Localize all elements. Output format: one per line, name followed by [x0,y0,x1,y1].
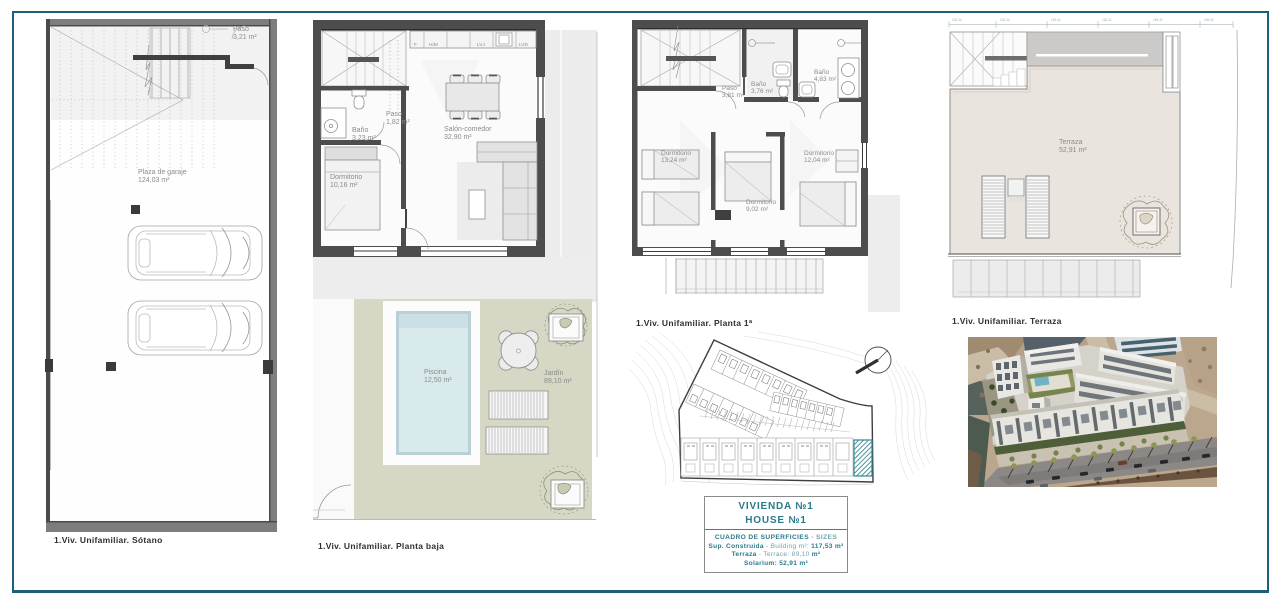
svg-text:Salón-comedor: Salón-comedor [444,126,492,133]
svg-text:162,41: 162,41 [1153,18,1163,22]
svg-text:Terraza: Terraza [1059,139,1082,146]
svg-text:H/M: H/M [429,42,438,48]
svg-text:1.Viv. Unifamiliar. Planta 1ª: 1.Viv. Unifamiliar. Planta 1ª [636,318,753,328]
svg-text:Baño: Baño [814,69,830,76]
svg-text:3,81 m²: 3,81 m² [722,92,745,99]
svg-text:10,16 m²: 10,16 m² [330,182,358,189]
svg-text:Paso: Paso [722,85,737,92]
svg-text:1.Viv. Unifamiliar. Planta baj: 1.Viv. Unifamiliar. Planta baja [318,541,444,551]
svg-text:162,41: 162,41 [952,18,962,22]
svg-text:4,83 m²: 4,83 m² [814,76,837,83]
svg-text:162,41: 162,41 [1204,18,1214,22]
svg-text:3,21 m²: 3,21 m² [233,34,257,41]
svg-text:1,82 m²: 1,82 m² [386,119,410,126]
svg-text:Baño: Baño [751,81,767,88]
svg-text:Plaza de garaje: Plaza de garaje [138,169,187,176]
svg-text:162,41: 162,41 [1000,18,1010,22]
svg-text:LVD: LVD [519,42,529,48]
svg-text:9,02 m²: 9,02 m² [746,206,769,213]
svg-text:89,10 m²: 89,10 m² [544,378,572,385]
svg-text:Paso: Paso [386,111,402,118]
svg-text:12,04 m²: 12,04 m² [804,157,830,164]
svg-text:52,91 m²: 52,91 m² [1059,147,1087,154]
svg-text:Baño: Baño [352,127,368,134]
svg-text:124,03 m²: 124,03 m² [138,177,170,184]
svg-text:LVJ: LVJ [477,42,486,48]
svg-text:Piscina: Piscina [424,369,447,376]
svg-text:Dormitorio: Dormitorio [661,150,691,157]
svg-text:F: F [414,42,417,48]
svg-text:Dormitorio: Dormitorio [746,199,776,206]
svg-text:1.Viv. Unifamiliar. Terraza: 1.Viv. Unifamiliar. Terraza [952,316,1062,326]
svg-text:32,90 m²: 32,90 m² [444,134,472,141]
svg-text:3,76 m²: 3,76 m² [751,88,774,95]
svg-text:162,41: 162,41 [1102,18,1112,22]
svg-text:1.Viv. Unifamiliar. Sótano: 1.Viv. Unifamiliar. Sótano [54,535,163,545]
svg-text:Jardín: Jardín [544,370,564,377]
svg-text:162,41: 162,41 [1051,18,1061,22]
svg-text:12,50 m²: 12,50 m² [424,377,452,384]
svg-text:Paso: Paso [233,26,249,33]
svg-text:13,24 m²: 13,24 m² [661,157,687,164]
svg-text:Dormitorio: Dormitorio [804,150,834,157]
svg-text:3,23 m²: 3,23 m² [352,135,376,142]
svg-text:Dormitorio: Dormitorio [330,174,362,181]
